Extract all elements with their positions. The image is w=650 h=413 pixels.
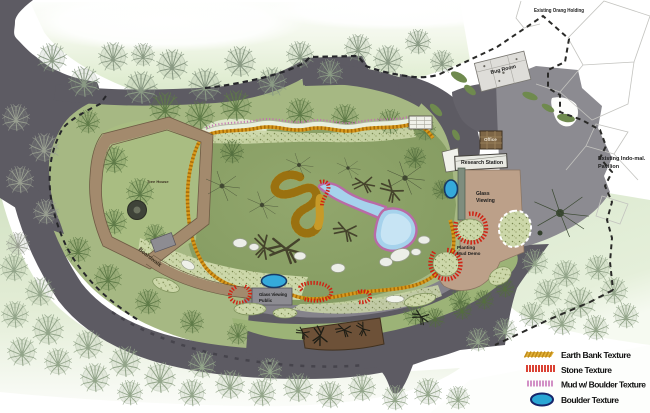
svg-text:Boulder Texture: Boulder Texture [561,395,619,405]
svg-text:Stone Texture: Stone Texture [561,365,612,375]
svg-text:Glass: Glass [476,191,490,197]
svg-text:Earth Bank Texture: Earth Bank Texture [561,350,631,360]
svg-text:Public: Public [259,298,273,303]
svg-text:Existing Orang Holding: Existing Orang Holding [534,8,584,14]
svg-text:Planting: Planting [457,245,475,250]
svg-text:Mud w/ Boulder Texture: Mud w/ Boulder Texture [561,380,646,390]
svg-text:Pavilion: Pavilion [598,164,620,170]
svg-text:Mud Demo: Mud Demo [457,251,481,256]
svg-text:Viewing: Viewing [476,198,495,204]
svg-text:Tree House: Tree House [147,179,169,184]
svg-text:Research Station: Research Station [461,160,503,166]
svg-text:Glass Viewing: Glass Viewing [259,292,287,297]
svg-text:Office: Office [484,137,497,142]
svg-text:Existing Indo-mal.: Existing Indo-mal. [598,156,646,162]
